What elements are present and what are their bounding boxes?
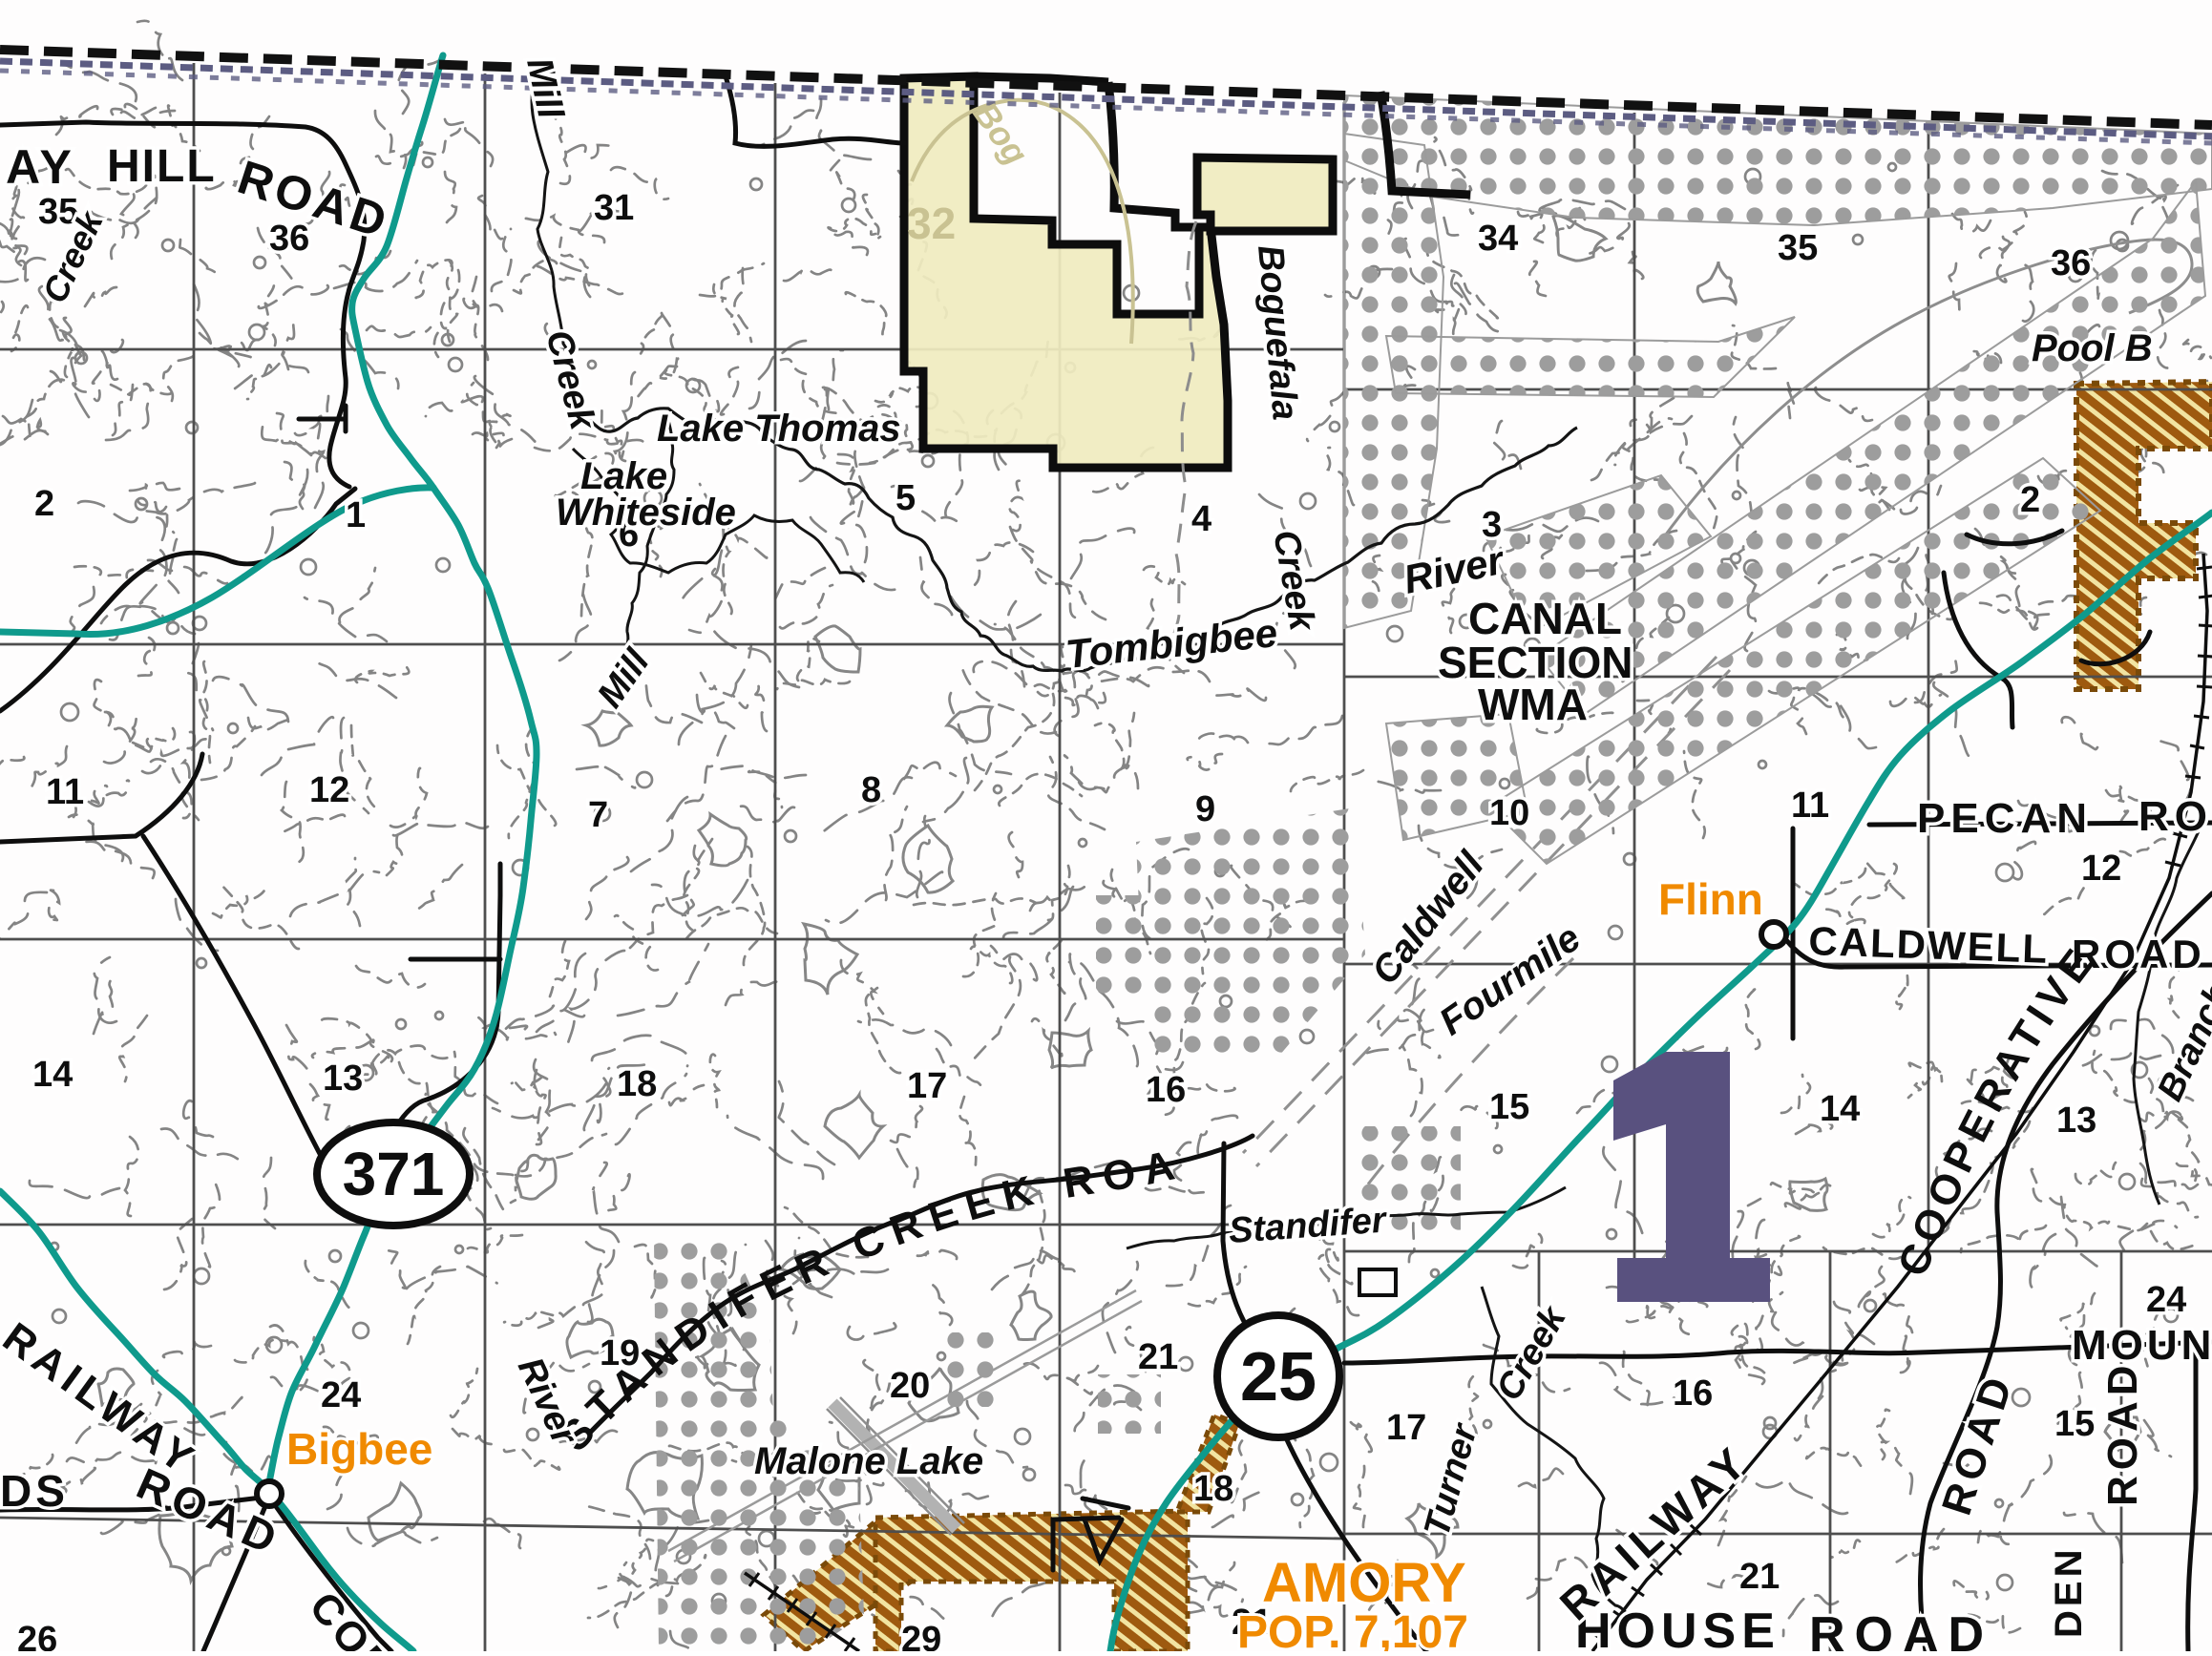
svg-text:18: 18 (617, 1064, 657, 1104)
svg-text:26: 26 (17, 1620, 57, 1651)
svg-text:16: 16 (1146, 1070, 1186, 1110)
svg-text:20: 20 (890, 1366, 930, 1406)
svg-text:DS: DS (0, 1466, 69, 1516)
svg-text:12: 12 (2081, 849, 2121, 889)
svg-text:7: 7 (588, 795, 608, 835)
svg-text:2: 2 (2020, 480, 2040, 520)
svg-text:HILL: HILL (107, 141, 217, 192)
svg-text:17: 17 (907, 1066, 947, 1106)
svg-text:34: 34 (1478, 219, 1518, 259)
svg-text:8: 8 (861, 770, 881, 810)
svg-text:9: 9 (1195, 789, 1215, 829)
svg-text:2: 2 (34, 484, 54, 524)
svg-text:24: 24 (321, 1375, 361, 1415)
svg-text:Malone Lake: Malone Lake (754, 1440, 983, 1482)
svg-text:29: 29 (901, 1620, 941, 1651)
svg-text:CALDWELL: CALDWELL (1808, 918, 2050, 972)
svg-text:ROA: ROA (2138, 793, 2212, 840)
svg-text:10: 10 (1489, 793, 1529, 833)
svg-text:13: 13 (323, 1059, 363, 1099)
svg-text:16: 16 (1673, 1373, 1713, 1414)
svg-text:32: 32 (907, 199, 956, 248)
svg-text:WMA: WMA (1478, 680, 1588, 729)
svg-text:4: 4 (1191, 499, 1211, 539)
svg-text:12: 12 (309, 770, 349, 810)
svg-text:ROAD: ROAD (2099, 1359, 2146, 1506)
svg-text:11: 11 (1791, 786, 1829, 826)
svg-text:25: 25 (1240, 1339, 1317, 1415)
svg-text:AY: AY (6, 140, 75, 194)
svg-text:PECAN: PECAN (1917, 795, 2093, 842)
svg-text:15: 15 (2054, 1404, 2095, 1444)
svg-text:Bigbee: Bigbee (286, 1424, 432, 1474)
svg-text:Whiteside: Whiteside (556, 492, 736, 534)
svg-text:36: 36 (2051, 243, 2091, 283)
svg-text:CANAL: CANAL (1468, 594, 1622, 643)
svg-text:36: 36 (269, 219, 309, 259)
svg-text:Lake Thomas: Lake Thomas (657, 408, 901, 450)
svg-text:21: 21 (1739, 1557, 1780, 1597)
svg-text:13: 13 (2056, 1101, 2096, 1141)
svg-text:DEN: DEN (2048, 1546, 2090, 1638)
svg-text:AMORY: AMORY (1262, 1552, 1466, 1614)
svg-text:17: 17 (1386, 1408, 1426, 1448)
svg-text:5: 5 (895, 478, 916, 518)
svg-text:POP. 7,107: POP. 7,107 (1237, 1607, 1468, 1651)
svg-text:14: 14 (32, 1055, 73, 1095)
svg-text:Pool B: Pool B (2032, 327, 2153, 369)
svg-text:ROAD: ROAD (1809, 1607, 1993, 1651)
svg-text:371: 371 (343, 1140, 445, 1208)
svg-text:31: 31 (594, 188, 634, 228)
svg-text:35: 35 (1778, 228, 1818, 268)
svg-text:HOUSE: HOUSE (1575, 1604, 1780, 1651)
svg-text:15: 15 (1489, 1087, 1529, 1127)
svg-text:Flinn: Flinn (1658, 874, 1763, 924)
svg-text:11: 11 (46, 772, 84, 812)
svg-text:1: 1 (346, 495, 366, 535)
svg-text:24: 24 (2146, 1280, 2186, 1320)
svg-text:21: 21 (1138, 1337, 1178, 1377)
svg-text:14: 14 (1820, 1089, 1860, 1129)
svg-text:18: 18 (1193, 1469, 1233, 1509)
